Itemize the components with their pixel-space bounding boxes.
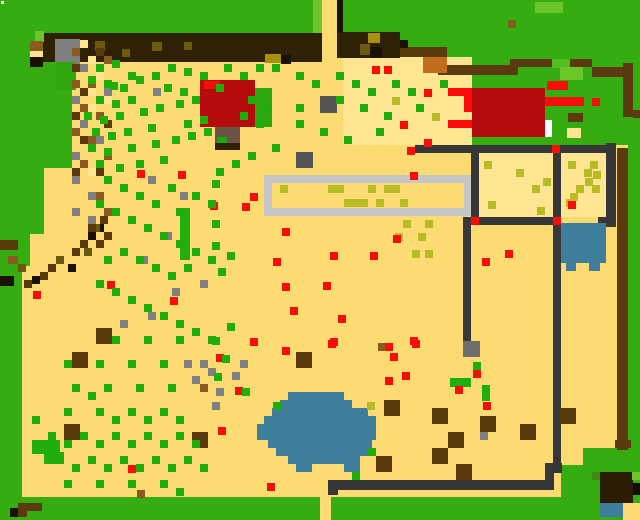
debris-rock bbox=[180, 192, 188, 200]
pond-main-bump-1 bbox=[296, 464, 312, 472]
debris-rock bbox=[200, 360, 208, 368]
bush-dot bbox=[176, 416, 184, 424]
crop-dot bbox=[576, 185, 584, 193]
orange-dirt-patch bbox=[423, 57, 447, 73]
bush-dot bbox=[136, 192, 144, 200]
bush-dot bbox=[168, 464, 176, 472]
bush-dot bbox=[156, 104, 164, 112]
bush-dot bbox=[64, 360, 72, 368]
dirt-block bbox=[432, 448, 448, 464]
wall-v-left bbox=[463, 225, 471, 345]
bush-dot bbox=[160, 360, 168, 368]
bush-dot bbox=[212, 242, 220, 250]
building-3 bbox=[600, 472, 633, 503]
bush-dot bbox=[482, 393, 490, 401]
bush-dot bbox=[140, 108, 148, 116]
debris-dirt bbox=[96, 192, 104, 200]
dirt-block bbox=[64, 424, 80, 440]
bush-dot bbox=[176, 320, 184, 328]
fence-e bbox=[510, 59, 592, 67]
pond-main-6 bbox=[276, 448, 372, 456]
red-strip-2 bbox=[545, 97, 584, 106]
bush-dot bbox=[232, 160, 240, 168]
post-black bbox=[281, 55, 291, 64]
bush-dot bbox=[248, 96, 256, 104]
red-item bbox=[448, 120, 456, 128]
debris-dirt bbox=[72, 80, 80, 88]
red-item bbox=[282, 347, 290, 355]
red-item bbox=[384, 66, 392, 74]
dirt-block bbox=[96, 328, 112, 344]
red-item bbox=[402, 372, 410, 380]
bush-dot bbox=[120, 84, 128, 92]
red-item bbox=[464, 96, 472, 104]
path-dark-col bbox=[337, 0, 343, 33]
bush-dot bbox=[144, 336, 152, 344]
debris-wood bbox=[96, 168, 104, 176]
red-item bbox=[471, 217, 479, 225]
bush-dot bbox=[473, 362, 481, 370]
bottomleft-log-2 bbox=[18, 511, 27, 517]
log-diagonal bbox=[32, 276, 40, 284]
bush-dot bbox=[96, 440, 104, 448]
corner-tan bbox=[623, 503, 640, 520]
game-map-canvas[interactable] bbox=[0, 0, 640, 520]
red-item bbox=[505, 250, 513, 258]
bush-dot bbox=[96, 160, 104, 168]
bush-dot bbox=[80, 432, 88, 440]
debris-rock bbox=[232, 372, 240, 380]
bush-dot bbox=[128, 440, 136, 448]
bush-dot bbox=[124, 128, 132, 136]
pond-main-3 bbox=[272, 408, 368, 416]
bush-dot bbox=[224, 64, 232, 72]
pond-right bbox=[561, 223, 606, 263]
bush-dot bbox=[152, 72, 160, 80]
bush-dot bbox=[352, 80, 360, 88]
red-item bbox=[410, 172, 418, 180]
bush-dot bbox=[227, 323, 235, 331]
fence-c bbox=[447, 65, 510, 75]
log-diagonal-olive bbox=[56, 256, 64, 264]
bush-dot bbox=[110, 82, 118, 90]
debris-rock bbox=[120, 320, 128, 328]
bush-dot bbox=[88, 392, 96, 400]
bush-dot bbox=[108, 132, 116, 140]
bush-dot bbox=[120, 248, 128, 256]
debris-rock bbox=[72, 176, 80, 184]
log-edge-2 bbox=[0, 276, 14, 286]
wood-strip-right bbox=[617, 148, 628, 450]
post-6 bbox=[360, 44, 370, 55]
path-grass-light bbox=[313, 0, 322, 33]
bush-dot bbox=[176, 488, 184, 496]
debris-tan bbox=[80, 40, 88, 48]
log-diagonal-olive bbox=[18, 264, 26, 272]
debris-dirt bbox=[200, 384, 208, 392]
red-item bbox=[218, 427, 226, 435]
post-3 bbox=[152, 42, 162, 51]
debris-rock bbox=[80, 120, 88, 128]
bush-dot bbox=[100, 116, 108, 124]
bush-dot bbox=[214, 373, 222, 381]
debris-rock bbox=[72, 152, 80, 160]
crop-dot bbox=[376, 199, 384, 207]
crop-dot bbox=[403, 220, 411, 228]
red-item bbox=[290, 307, 298, 315]
bush-dot bbox=[344, 136, 352, 144]
white-pixel bbox=[1, 1, 4, 4]
bush-dot bbox=[212, 220, 220, 228]
dirt-dot bbox=[137, 490, 145, 498]
bush-dot bbox=[128, 216, 136, 224]
bush-dot bbox=[96, 280, 104, 288]
dirt-block bbox=[384, 400, 400, 416]
bush-dot bbox=[168, 64, 176, 72]
crop-dot bbox=[352, 199, 360, 207]
bush-dot bbox=[168, 184, 176, 192]
bush-topright-3 bbox=[560, 67, 583, 80]
bush-dot bbox=[152, 456, 160, 464]
band-left-dirt bbox=[30, 41, 43, 51]
crop-dot bbox=[367, 402, 375, 410]
bush-dot bbox=[184, 120, 192, 128]
red-item bbox=[330, 252, 338, 260]
bush-dot bbox=[312, 80, 320, 88]
bush-dot bbox=[264, 104, 272, 112]
bush-dot bbox=[112, 432, 120, 440]
red-item bbox=[282, 283, 290, 291]
bush-dot bbox=[96, 360, 104, 368]
red-item bbox=[424, 89, 432, 97]
crop-dot bbox=[368, 185, 376, 193]
grass-bottomright-b bbox=[561, 465, 583, 497]
bush-dot bbox=[96, 200, 104, 208]
debris-rock bbox=[80, 64, 88, 72]
bush-dot bbox=[136, 464, 144, 472]
red-item bbox=[464, 88, 472, 96]
debris-dirt bbox=[80, 160, 88, 168]
fence-g bbox=[623, 63, 633, 117]
crop-dot bbox=[592, 185, 600, 193]
bush-dot bbox=[336, 96, 344, 104]
bush-dot bbox=[368, 448, 376, 456]
bush-dot bbox=[172, 136, 180, 144]
grass-left-4 bbox=[0, 266, 22, 497]
red-item bbox=[170, 297, 178, 305]
log-diagonal-wood bbox=[80, 240, 88, 248]
bush-dot bbox=[144, 416, 152, 424]
pond-main-bump-2 bbox=[344, 464, 360, 472]
bush-dot bbox=[144, 304, 152, 312]
bush-dot bbox=[200, 72, 208, 80]
bush-dot bbox=[128, 408, 136, 416]
pond-main-7 bbox=[288, 456, 360, 464]
fence-f bbox=[592, 67, 623, 77]
debris-rock bbox=[72, 208, 80, 216]
bush-dot bbox=[96, 408, 104, 416]
bush-dot bbox=[296, 72, 304, 80]
bush-dot bbox=[160, 156, 168, 164]
debris-dirt bbox=[88, 136, 96, 144]
boulder-mid-2 bbox=[296, 152, 313, 168]
log-diagonal-olive bbox=[84, 248, 92, 256]
red-item bbox=[390, 353, 398, 361]
debris-wood bbox=[80, 136, 88, 144]
pond-main-2 bbox=[280, 400, 352, 408]
crop-dot bbox=[488, 201, 496, 209]
bush-dot bbox=[88, 76, 96, 84]
debris-dirt bbox=[104, 208, 112, 216]
wall-cap bbox=[463, 341, 480, 357]
bush-dot bbox=[160, 232, 168, 240]
bush-dot bbox=[136, 76, 144, 84]
crop-dot bbox=[568, 161, 576, 169]
debris-tan bbox=[88, 168, 96, 176]
bush-dot bbox=[152, 264, 160, 272]
bush-dot bbox=[104, 384, 112, 392]
bush-dot bbox=[216, 84, 224, 92]
debris-rock bbox=[88, 192, 96, 200]
log-diagonal-wood bbox=[48, 264, 56, 272]
red-item bbox=[473, 370, 481, 378]
red-item bbox=[482, 258, 490, 266]
bush-dot bbox=[192, 248, 200, 256]
post-8 bbox=[400, 40, 408, 48]
bush-dot bbox=[204, 128, 212, 136]
log-diagonal bbox=[68, 264, 76, 272]
bush-dot bbox=[296, 104, 304, 112]
debris-tan bbox=[88, 104, 96, 112]
building-2-door bbox=[545, 120, 552, 137]
bush-dot bbox=[184, 264, 192, 272]
bush-dot bbox=[192, 328, 200, 336]
log-edge-3 bbox=[8, 256, 18, 264]
debris-wood bbox=[72, 168, 80, 176]
debris-rock bbox=[184, 360, 192, 368]
debris-rock bbox=[72, 96, 80, 104]
red-item bbox=[552, 145, 560, 153]
debris-rock bbox=[148, 176, 156, 184]
bush-dot bbox=[104, 464, 112, 472]
corner-wood-tiles bbox=[615, 440, 631, 448]
fence-h bbox=[633, 110, 640, 118]
bush-dot bbox=[352, 472, 360, 480]
dirt-block bbox=[432, 408, 448, 424]
crop-dot bbox=[412, 250, 420, 258]
bush-dot bbox=[160, 312, 168, 320]
red-item bbox=[393, 235, 401, 243]
red-item bbox=[553, 217, 561, 225]
debris-wood bbox=[80, 88, 88, 96]
bush-dot bbox=[152, 140, 160, 148]
bush-dot bbox=[296, 120, 304, 128]
bush-dot bbox=[200, 116, 208, 124]
red-item bbox=[400, 121, 408, 129]
debris-dirt bbox=[104, 56, 112, 64]
bush-dot bbox=[96, 480, 104, 488]
red-item bbox=[412, 340, 420, 348]
dirt-block bbox=[448, 432, 464, 448]
bush-dot bbox=[176, 208, 184, 216]
bush-dot bbox=[216, 168, 224, 176]
wall-top bbox=[415, 145, 616, 153]
crop-dot bbox=[593, 171, 601, 179]
bottomleft-log-1 bbox=[18, 503, 42, 511]
debris-tan bbox=[96, 72, 104, 80]
band-left-dark bbox=[30, 57, 43, 67]
bottomleft-dark bbox=[10, 508, 18, 517]
bush-dot bbox=[192, 192, 200, 200]
building-1-base bbox=[215, 143, 240, 150]
debris-rock bbox=[172, 288, 180, 296]
bush-dot bbox=[336, 72, 344, 80]
bush-dot bbox=[208, 256, 216, 264]
debris-rock bbox=[480, 432, 488, 440]
grass-left-2 bbox=[0, 168, 44, 234]
red-item bbox=[372, 66, 380, 74]
bush-dot bbox=[240, 72, 248, 80]
red-item bbox=[267, 483, 275, 491]
bush-dot bbox=[320, 128, 328, 136]
debris-rock bbox=[216, 388, 224, 396]
boulder-mid-1 bbox=[320, 96, 337, 113]
post-4 bbox=[184, 42, 192, 50]
bush-dot bbox=[242, 388, 250, 396]
bush-dot bbox=[64, 408, 72, 416]
log-diagonal-wood bbox=[100, 216, 108, 224]
bush-dot bbox=[176, 432, 184, 440]
bush-dot bbox=[482, 385, 490, 393]
red-item bbox=[464, 120, 472, 128]
bush-dot bbox=[56, 456, 64, 464]
debris-wood bbox=[96, 240, 104, 248]
bush-dot bbox=[164, 84, 172, 92]
dirt-dot bbox=[508, 20, 516, 28]
dirt-block bbox=[456, 464, 472, 480]
building-3-edge bbox=[633, 483, 640, 495]
bush-dot bbox=[64, 440, 72, 448]
bush-dot bbox=[144, 432, 152, 440]
debris-dirt bbox=[72, 128, 80, 136]
red-item bbox=[128, 465, 136, 473]
debris-rock bbox=[88, 216, 96, 224]
bush-dot bbox=[64, 480, 72, 488]
bush-dot bbox=[256, 64, 264, 72]
bush-dot bbox=[416, 104, 424, 112]
crop-dot bbox=[392, 97, 400, 105]
pond-right-bump-2 bbox=[589, 263, 600, 271]
red-item bbox=[178, 171, 186, 179]
bush-dot bbox=[360, 104, 368, 112]
debris-rock bbox=[153, 88, 161, 96]
red-item bbox=[456, 120, 464, 128]
bush-dot bbox=[272, 64, 280, 72]
bush-dot bbox=[112, 416, 120, 424]
bush-topright-1 bbox=[535, 2, 563, 13]
bush-dot bbox=[128, 144, 136, 152]
log-edge-1 bbox=[0, 240, 18, 250]
bush-dot bbox=[180, 88, 188, 96]
bush-dot bbox=[96, 64, 104, 72]
bush-dot bbox=[168, 272, 176, 280]
bush-dot bbox=[192, 440, 200, 448]
bush-dot bbox=[96, 96, 104, 104]
field-patch bbox=[567, 128, 581, 138]
log-diagonal-wood bbox=[72, 248, 80, 256]
crop-dot bbox=[418, 233, 426, 241]
debris-rock bbox=[148, 312, 156, 320]
bush-dot bbox=[136, 256, 144, 264]
wall-bottom-foot bbox=[328, 488, 338, 495]
path-top bbox=[322, 0, 337, 63]
debris-rock bbox=[96, 136, 104, 144]
bush-dot bbox=[88, 456, 96, 464]
bush-dot bbox=[192, 96, 200, 104]
bush-dot bbox=[160, 408, 168, 416]
red-item bbox=[370, 252, 378, 260]
bush-dot bbox=[168, 384, 176, 392]
crop-dot bbox=[432, 113, 440, 121]
path-bottom-gap bbox=[320, 497, 331, 520]
red-item bbox=[424, 139, 432, 147]
wall-bottom bbox=[328, 480, 554, 490]
bush-dot bbox=[144, 224, 152, 232]
bush-dot bbox=[128, 296, 136, 304]
corner-grass-light-dot bbox=[632, 472, 640, 480]
wood-dash bbox=[568, 113, 583, 122]
bush-dot bbox=[212, 337, 220, 345]
red-item bbox=[328, 340, 336, 348]
crop-dot bbox=[425, 220, 433, 228]
bush-dot bbox=[392, 80, 400, 88]
bush-dot bbox=[376, 128, 384, 136]
debris-wood bbox=[96, 48, 104, 56]
bush-dot bbox=[212, 180, 220, 188]
post-7 bbox=[370, 47, 382, 58]
bush-dot bbox=[256, 120, 264, 128]
corner-grass-dark-dot bbox=[592, 472, 600, 480]
red-item bbox=[242, 203, 250, 211]
bush-dot bbox=[240, 112, 248, 120]
bush-dot bbox=[148, 124, 156, 132]
bush-dot bbox=[227, 252, 235, 260]
dirt-block bbox=[560, 408, 576, 424]
crop-dot bbox=[344, 199, 352, 207]
red-item bbox=[385, 377, 393, 385]
bush-dot bbox=[248, 152, 256, 160]
bush-dot bbox=[222, 355, 230, 363]
log-diagonal-wood bbox=[24, 280, 32, 288]
bush-dot bbox=[136, 160, 144, 168]
crop-dot bbox=[543, 178, 551, 186]
crop-dot bbox=[532, 185, 540, 193]
bush-dot bbox=[408, 88, 416, 96]
crop-dot bbox=[400, 199, 408, 207]
red-item bbox=[464, 104, 472, 112]
pond-right-bump-1 bbox=[566, 263, 576, 271]
red-item bbox=[385, 343, 393, 351]
crop-dot bbox=[537, 207, 545, 215]
crop-dot bbox=[584, 169, 592, 177]
bush-dot bbox=[116, 164, 124, 172]
bush-dot bbox=[176, 336, 184, 344]
bush-dot bbox=[112, 288, 120, 296]
bush-dot bbox=[273, 402, 281, 410]
crop-dot bbox=[516, 169, 524, 177]
bush-dot bbox=[104, 256, 112, 264]
bush-dot bbox=[218, 268, 226, 276]
